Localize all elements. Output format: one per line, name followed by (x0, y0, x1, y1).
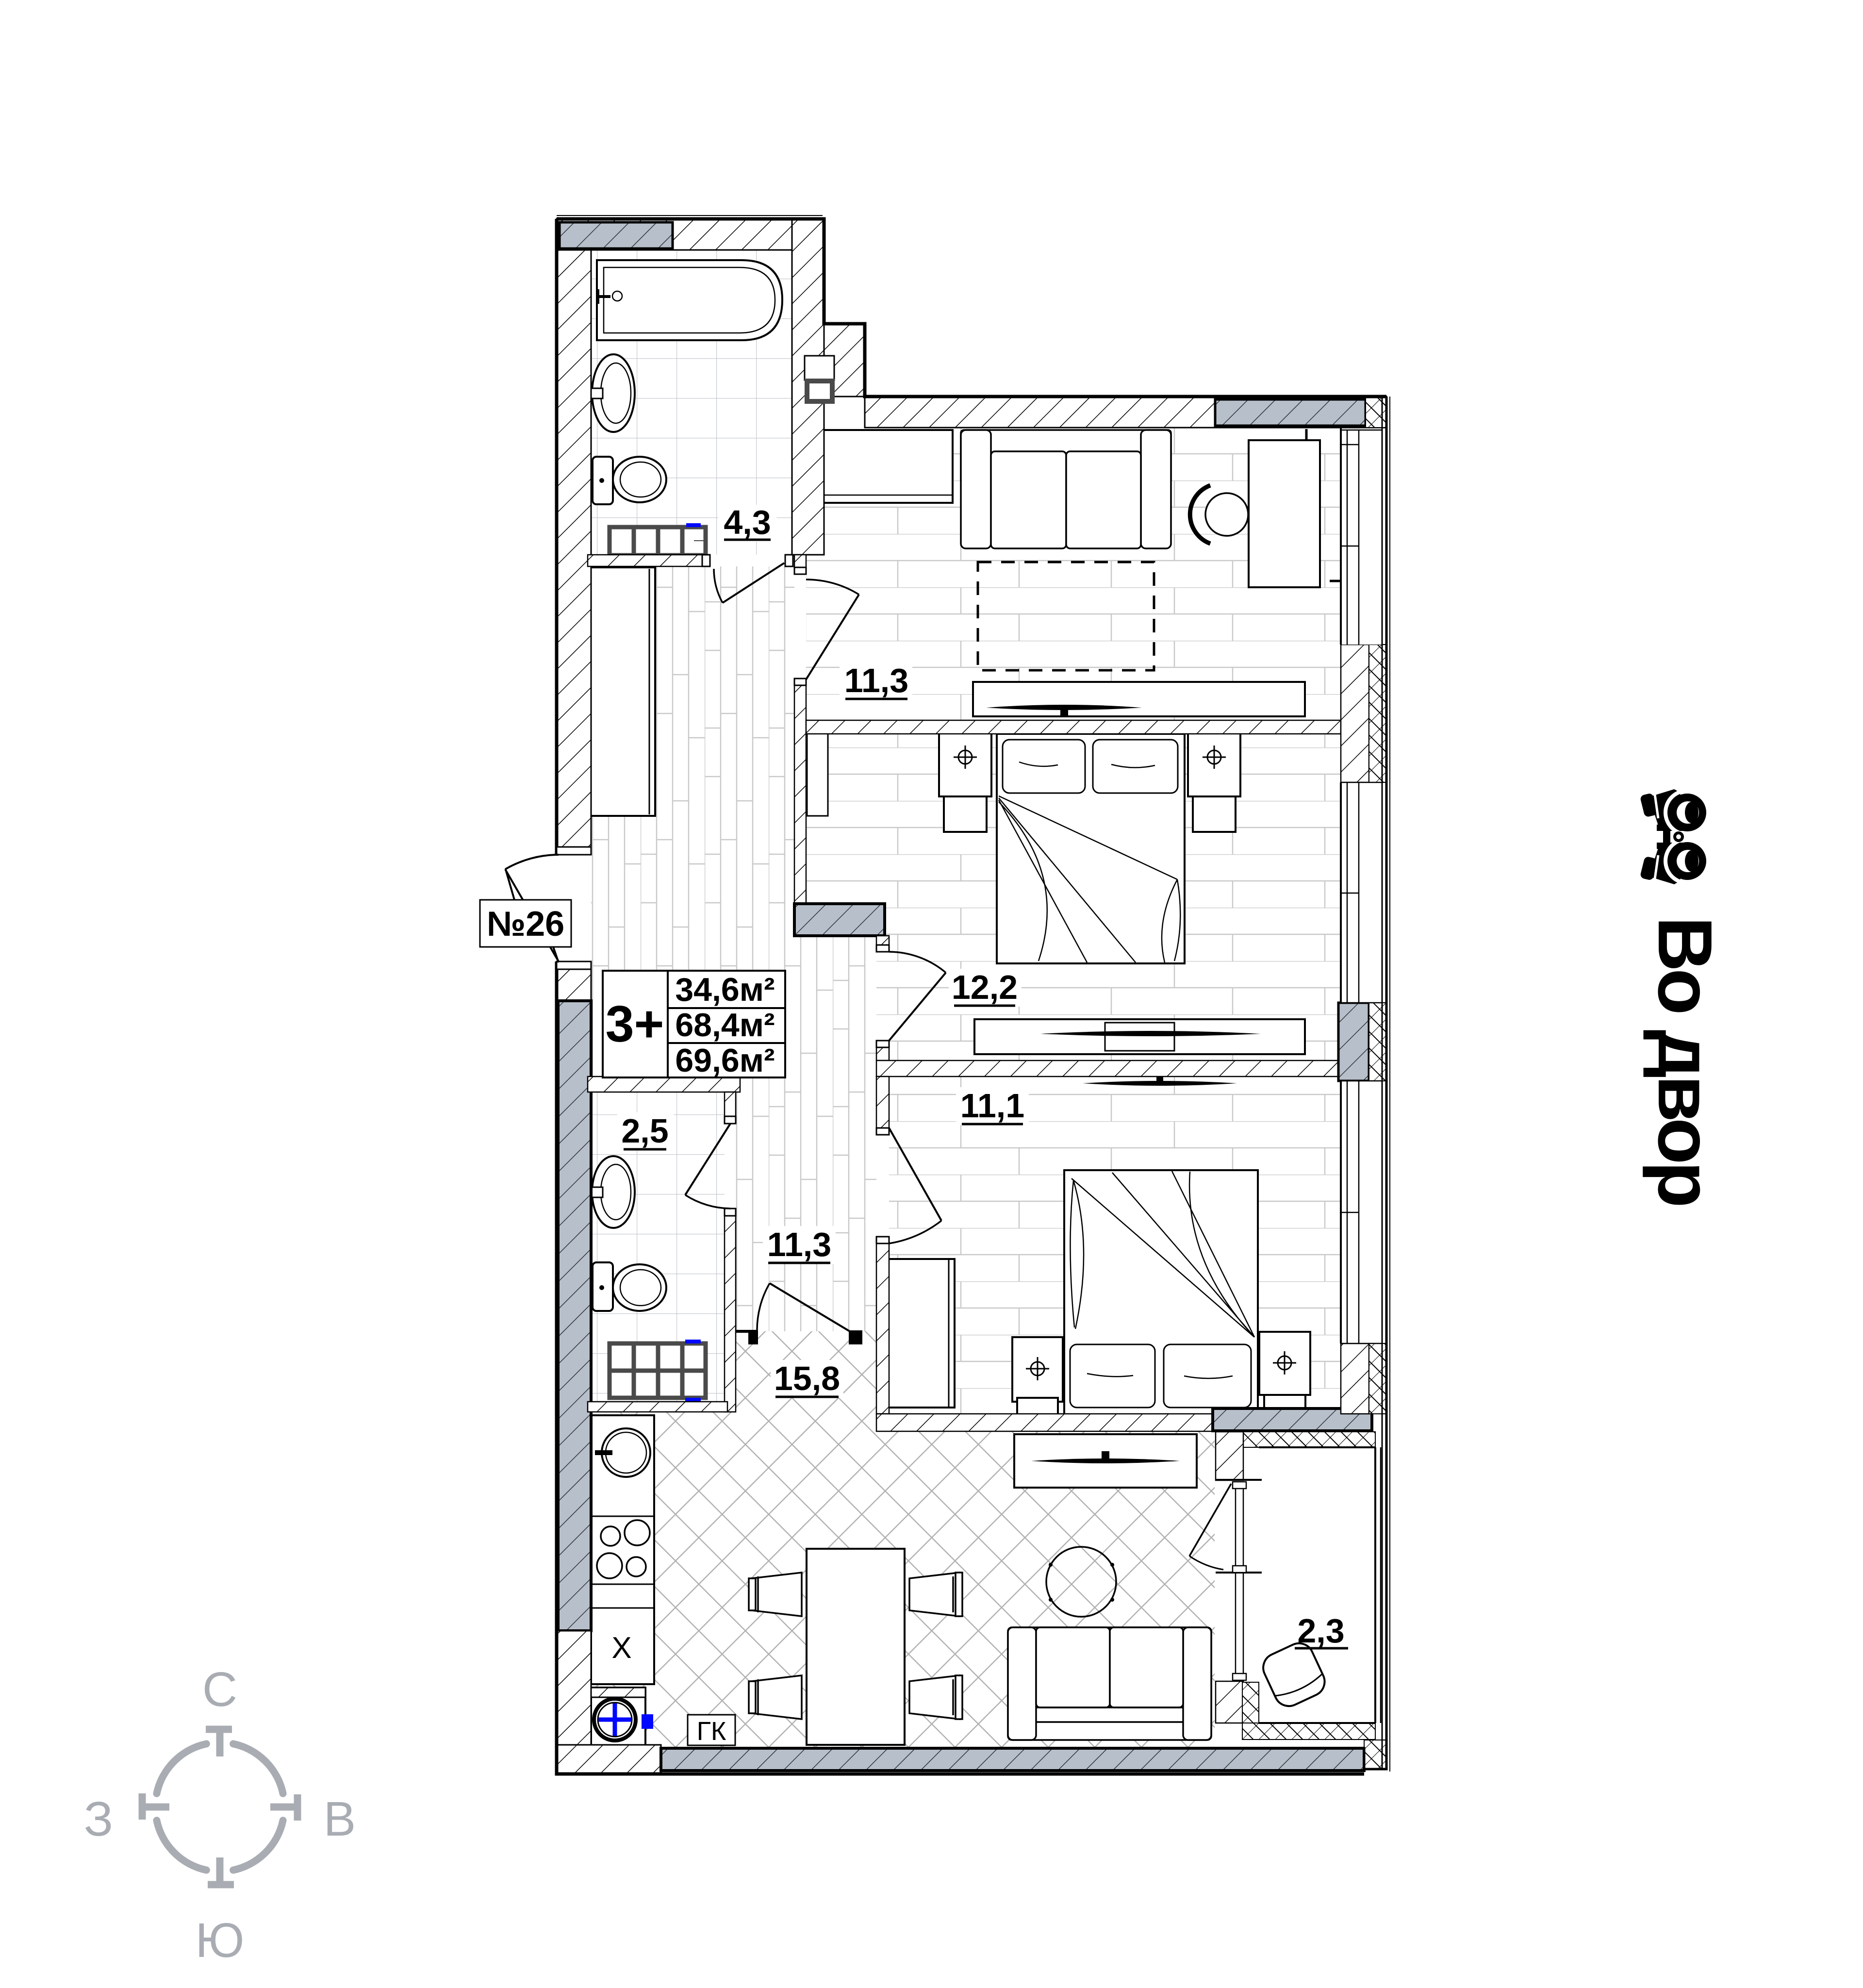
svg-text:34,6м²: 34,6м² (675, 971, 775, 1008)
svg-text:4,3: 4,3 (724, 503, 771, 541)
svg-text:С: С (202, 1662, 237, 1717)
svg-text:Ю: Ю (195, 1913, 244, 1968)
svg-text:69,6м²: 69,6м² (675, 1042, 775, 1079)
svg-text:15,8: 15,8 (774, 1359, 840, 1397)
svg-text:Во двор: Во двор (1642, 916, 1728, 1205)
svg-text:11,3: 11,3 (767, 1226, 831, 1263)
svg-text:В: В (324, 1792, 356, 1846)
svg-text:68,4м²: 68,4м² (675, 1007, 775, 1044)
svg-text:11,1: 11,1 (960, 1087, 1024, 1125)
svg-text:3+: 3+ (606, 995, 664, 1053)
svg-text:З: З (84, 1792, 113, 1846)
svg-text:№26: №26 (487, 905, 564, 944)
svg-text:12,2: 12,2 (952, 968, 1018, 1006)
svg-text:ГК: ГК (697, 1717, 726, 1746)
svg-text:X: X (611, 1631, 631, 1665)
svg-text:2,5: 2,5 (621, 1112, 668, 1150)
svg-text:2,3: 2,3 (1297, 1612, 1344, 1650)
svg-text:11,3: 11,3 (844, 662, 908, 699)
